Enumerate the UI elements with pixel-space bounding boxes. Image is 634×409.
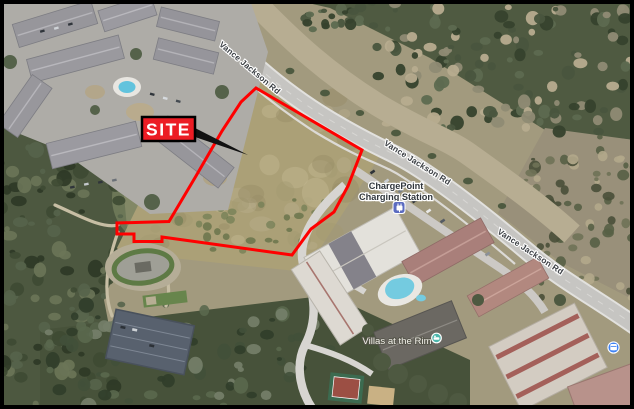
villas-poi[interactable]: Villas at the Rim bbox=[362, 333, 441, 347]
aerial-site-map: Vance Jackson Rd Vance Jackson Rd Vance … bbox=[0, 0, 634, 409]
apartment-pool bbox=[113, 77, 141, 97]
villas-label: Villas at the Rim bbox=[362, 336, 431, 347]
ev-charging-icon[interactable] bbox=[393, 201, 406, 214]
lodging-marker-icon[interactable] bbox=[432, 333, 442, 343]
charging-station-label-line1: ChargePoint bbox=[369, 181, 424, 191]
transit-stop-icon[interactable] bbox=[608, 342, 619, 353]
charging-station-label-line2: Charging Station bbox=[359, 192, 433, 202]
map-canvas: Vance Jackson Rd Vance Jackson Rd Vance … bbox=[0, 0, 634, 409]
site-callout-label: SITE bbox=[146, 120, 191, 140]
